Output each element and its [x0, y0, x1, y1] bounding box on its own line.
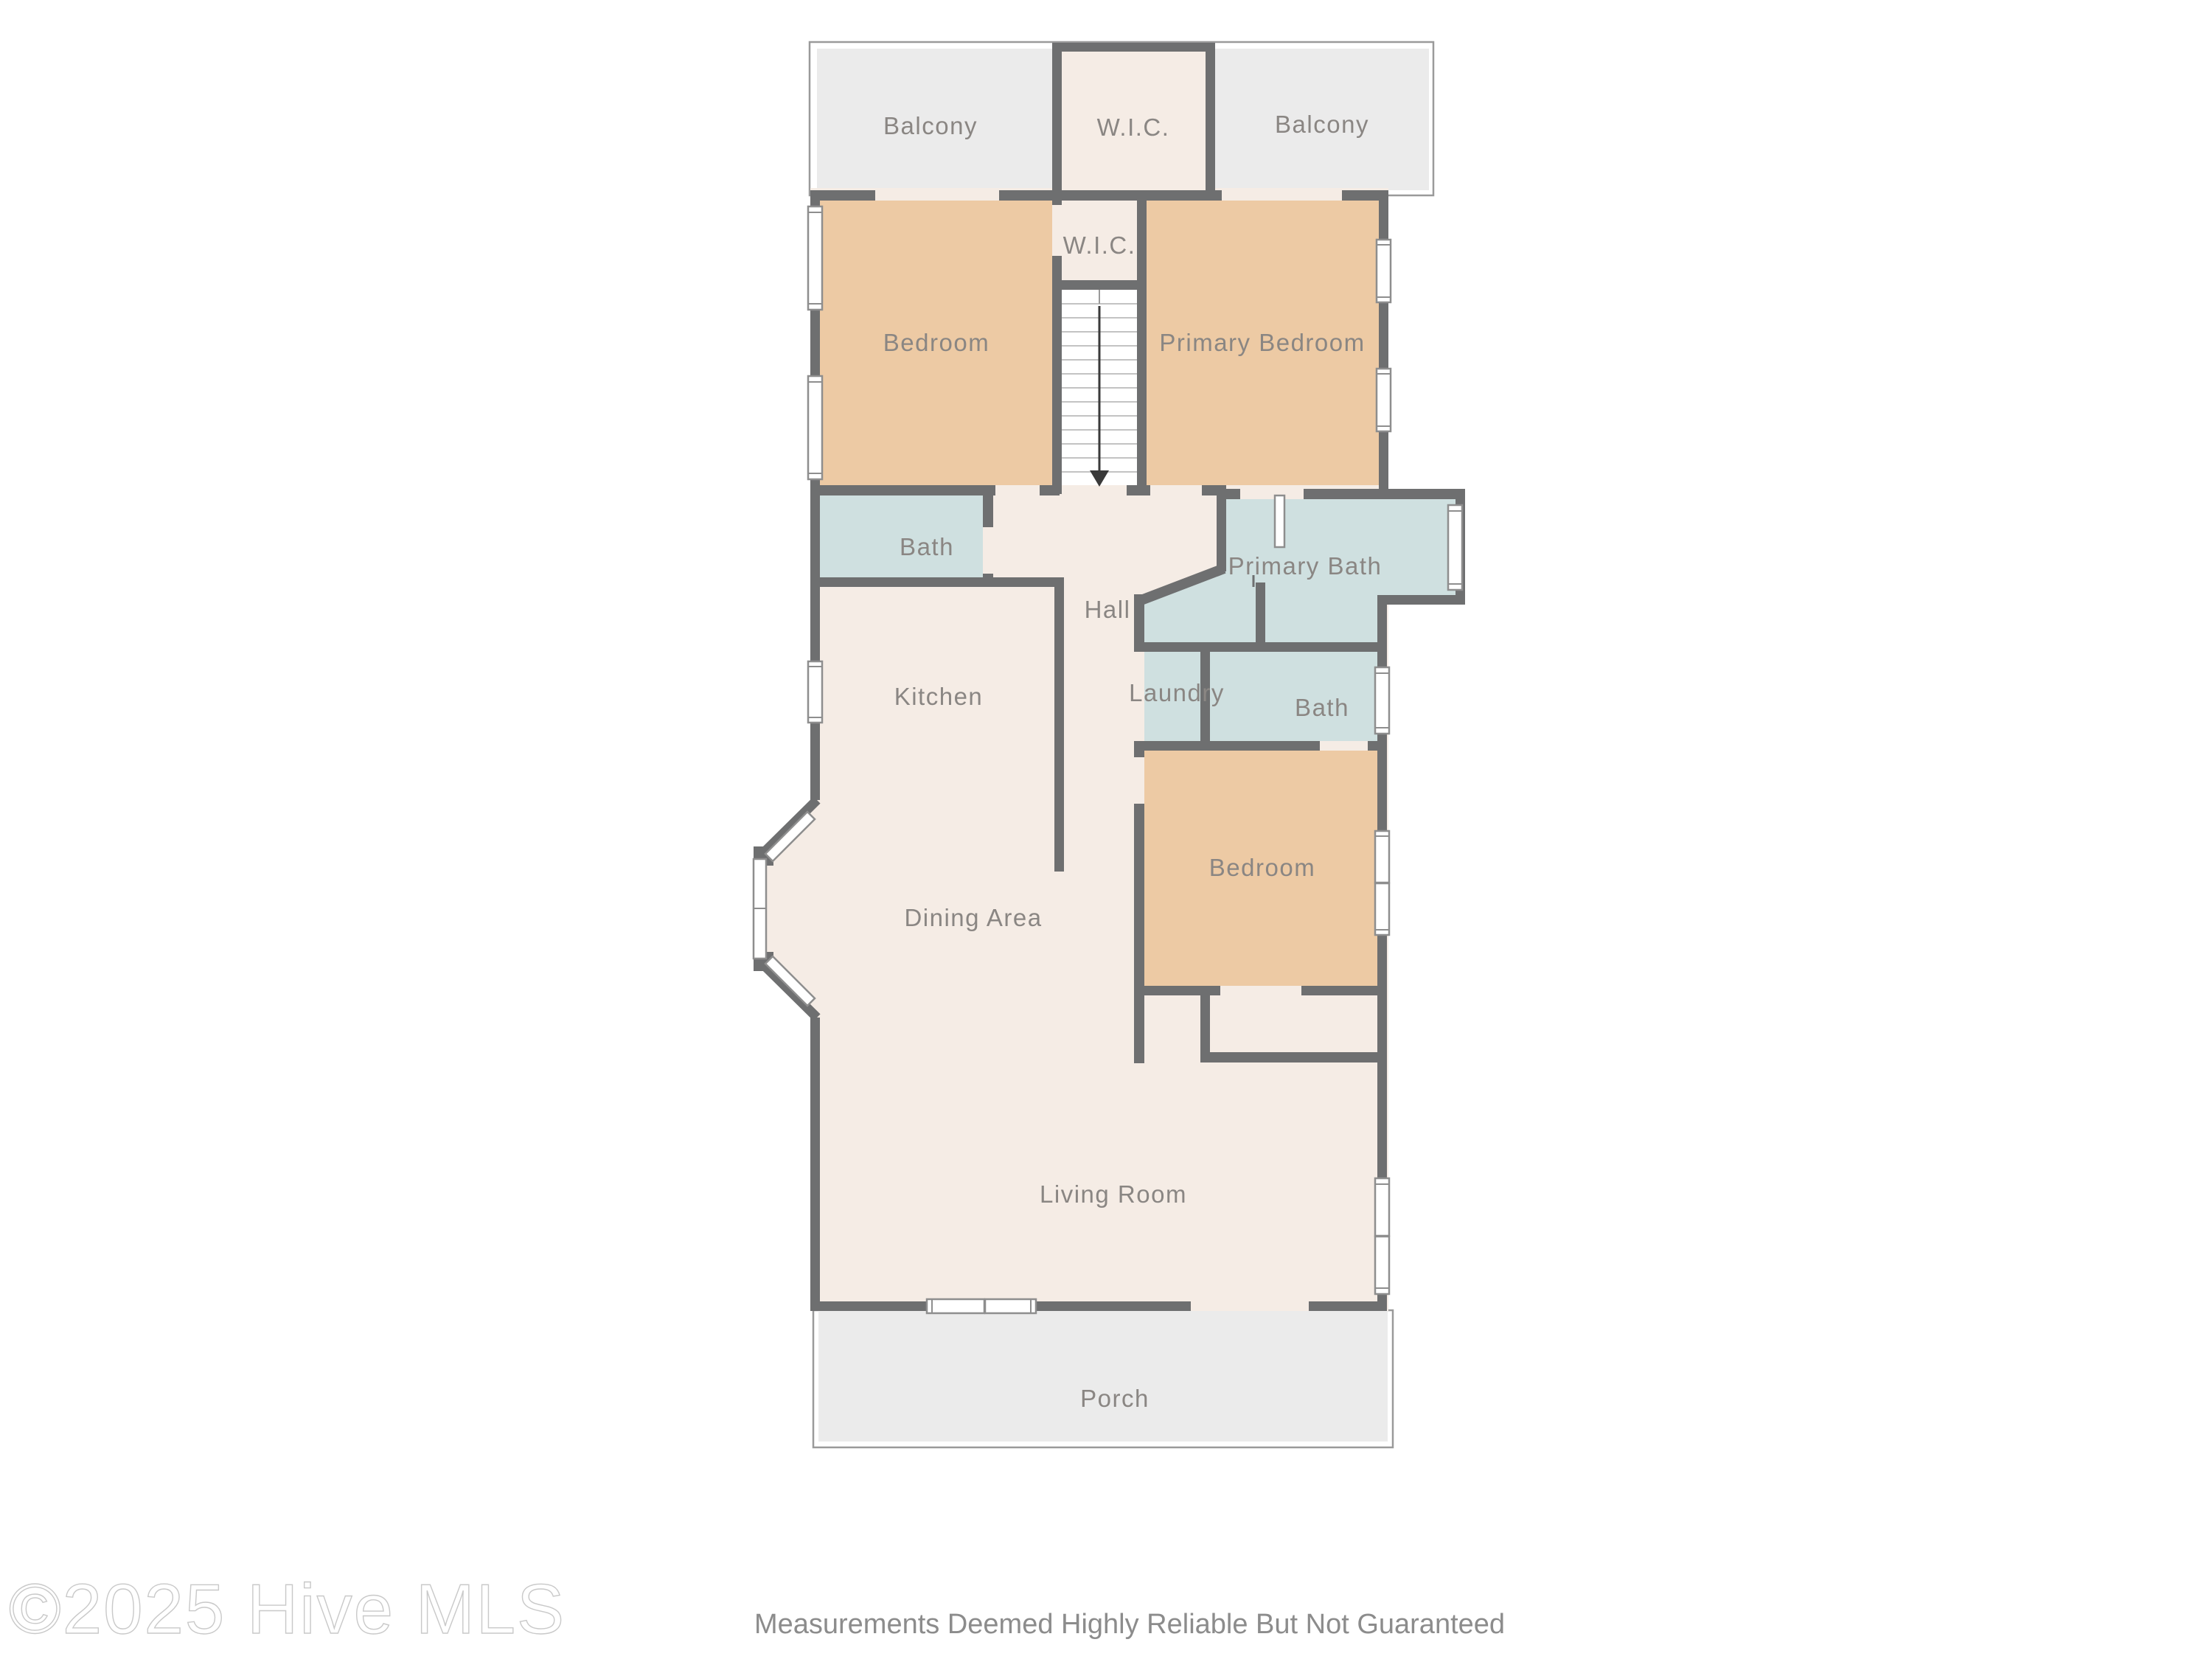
window [1375, 1178, 1389, 1294]
porch-floor [818, 1310, 1388, 1441]
bedroom-2-floor [1144, 751, 1377, 986]
window [927, 1299, 1036, 1313]
window [1375, 831, 1389, 935]
primary-bedroom-floor [1147, 201, 1379, 485]
laundry-floor [1144, 652, 1200, 741]
floor-plan-drawing [0, 0, 2212, 1659]
shower-partition [1275, 495, 1284, 547]
window [1377, 369, 1391, 431]
bath-2-floor [1210, 652, 1377, 741]
balcony-right-floor [1215, 49, 1429, 190]
bath-1-floor [820, 494, 983, 577]
wic-top-floor [1062, 49, 1206, 196]
bedroom-1-floor [820, 201, 1052, 485]
window [1377, 240, 1391, 302]
window [1448, 505, 1462, 590]
window [808, 206, 822, 310]
staircase [1062, 290, 1137, 487]
window [808, 661, 822, 723]
window [808, 376, 822, 479]
window [1375, 667, 1389, 734]
floor-plan [0, 0, 2212, 1659]
balcony-left-floor [817, 49, 1052, 190]
porch-outline [813, 1310, 1393, 1447]
